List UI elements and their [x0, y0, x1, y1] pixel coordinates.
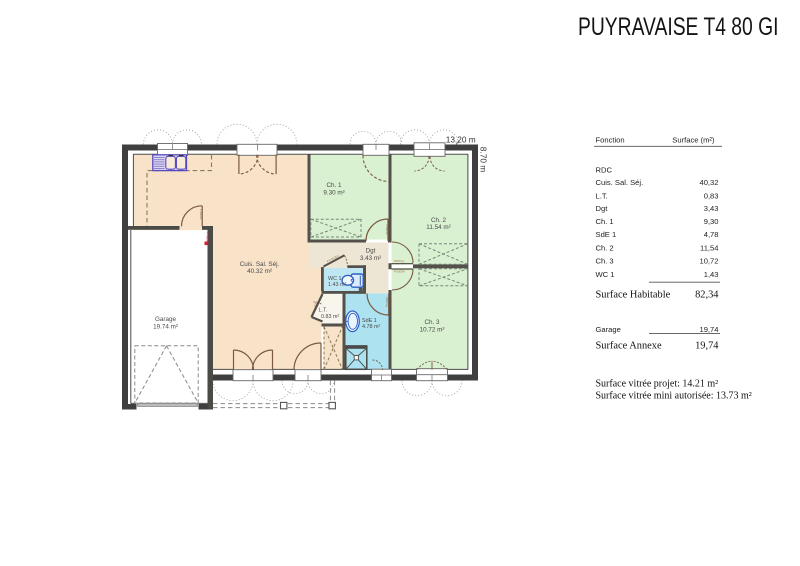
svg-text:19,74: 19,74	[699, 325, 718, 334]
svg-text:1.43 m²: 1.43 m²	[328, 282, 346, 288]
svg-text:11,54: 11,54	[700, 243, 718, 252]
svg-text:L.T.: L.T.	[319, 307, 328, 313]
svg-text:Cuis. Sal. Séj.: Cuis. Sal. Séj.	[240, 261, 280, 268]
svg-text:40,32: 40,32	[699, 178, 718, 187]
svg-text:9,30: 9,30	[704, 217, 719, 226]
svg-text:Garage: Garage	[155, 316, 177, 323]
svg-text:Dgt: Dgt	[366, 248, 376, 255]
svg-text:P0073 g: P0073 g	[394, 259, 405, 263]
svg-text:19.74 m²: 19.74 m²	[153, 324, 178, 331]
svg-text:Cuis. Sal. Séj.: Cuis. Sal. Séj.	[596, 178, 644, 187]
svg-text:Surface vitrée mini autorisée:: Surface vitrée mini autorisée: 13.73 m²	[596, 390, 752, 401]
svg-text:Surface Habitable: Surface Habitable	[596, 289, 671, 300]
svg-text:P 80/204: P 80/204	[385, 224, 389, 235]
svg-text:Dgt: Dgt	[596, 204, 609, 213]
svg-text:Ch. 2: Ch. 2	[596, 243, 614, 252]
svg-text:P 60/204: P 60/204	[394, 270, 405, 274]
svg-text:10,72: 10,72	[699, 257, 718, 266]
svg-text:4,78: 4,78	[704, 230, 719, 239]
svg-text:8.70 m: 8.70 m	[478, 147, 488, 172]
svg-text:PUYRAVAISE T4 80 GI: PUYRAVAISE T4 80 GI	[578, 13, 779, 41]
svg-text:SdE 1: SdE 1	[596, 230, 617, 239]
svg-text:Ch. 3: Ch. 3	[596, 257, 614, 266]
svg-text:Ch. 1: Ch. 1	[596, 217, 614, 226]
svg-text:0,83: 0,83	[704, 191, 719, 200]
svg-text:Fonction: Fonction	[596, 136, 625, 145]
svg-text:P0073 g: P0073 g	[385, 297, 389, 308]
svg-text:Surface vitrée projet: 14.21: Surface vitrée projet: 14.21 m²	[596, 378, 719, 389]
svg-text:82,34: 82,34	[695, 289, 719, 300]
svg-text:19,74: 19,74	[695, 341, 719, 352]
svg-text:Ch. 2: Ch. 2	[431, 217, 447, 224]
svg-text:L.T.: L.T.	[596, 191, 608, 200]
svg-text:11.54 m²: 11.54 m²	[426, 224, 450, 231]
svg-text:3.43 m²: 3.43 m²	[360, 255, 381, 262]
svg-text:Surface Annexe: Surface Annexe	[596, 341, 662, 352]
svg-text:Surface (m²): Surface (m²)	[672, 136, 715, 145]
svg-text:40.32 m²: 40.32 m²	[247, 268, 272, 275]
svg-text:P 90/204: P 90/204	[199, 209, 203, 220]
svg-text:RDC: RDC	[596, 165, 613, 174]
svg-text:3,43: 3,43	[704, 204, 719, 213]
svg-text:Ch. 3: Ch. 3	[424, 319, 440, 326]
svg-text:Garage: Garage	[596, 325, 621, 334]
svg-text:9.30 m²: 9.30 m²	[323, 189, 344, 196]
svg-text:Ch. 1: Ch. 1	[326, 182, 342, 189]
svg-text:0.83 m²: 0.83 m²	[321, 314, 339, 320]
svg-text:10.72 m²: 10.72 m²	[420, 327, 445, 334]
svg-text:4.78 m²: 4.78 m²	[362, 324, 380, 330]
svg-text:13.20 m: 13.20 m	[446, 135, 476, 145]
svg-text:1,43: 1,43	[704, 270, 719, 279]
svg-text:WC 1: WC 1	[596, 270, 615, 279]
